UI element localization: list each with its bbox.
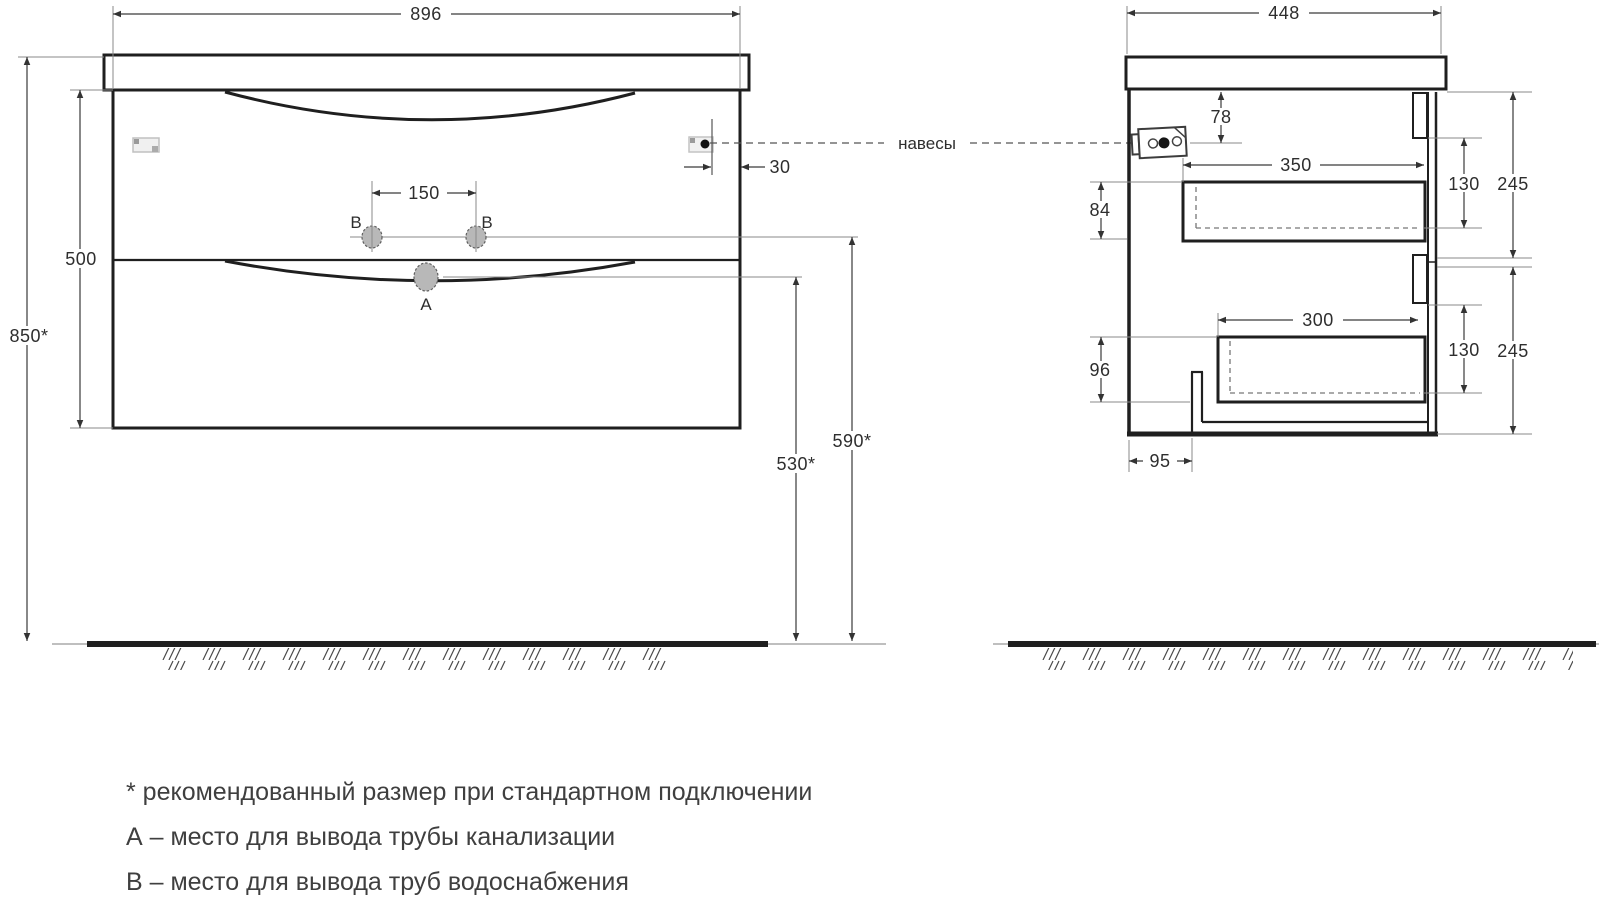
hanger-callout: навесы	[710, 134, 1150, 153]
side-floor	[993, 644, 1599, 670]
dim-850: 850*	[9, 326, 48, 346]
dim-front-total-height: 850*	[3, 57, 104, 641]
side-view	[1126, 57, 1446, 435]
label-b-left: B	[350, 213, 361, 232]
side-hanger-bracket	[1131, 127, 1186, 159]
dim-84: 84	[1089, 200, 1110, 220]
dim-896: 896	[410, 4, 442, 24]
drain-hole	[414, 263, 438, 291]
wall-rail-top	[1413, 93, 1427, 138]
dim-96: 96	[1089, 360, 1110, 380]
dim-500: 500	[65, 249, 97, 269]
footnotes: * рекомендованный размер при стандартном…	[126, 770, 812, 905]
dim-supply-height: 590*	[826, 237, 878, 641]
dim-448: 448	[1268, 3, 1300, 23]
dim-590: 590*	[832, 431, 871, 451]
side-countertop	[1126, 57, 1446, 89]
footnote-water-supply: В – место для вывода труб водоснабжения	[126, 860, 812, 905]
side-floor-hatching	[1028, 648, 1573, 670]
wall-rail-middle	[1413, 255, 1427, 303]
dim-350: 350	[1280, 155, 1312, 175]
label-b-right: B	[481, 213, 492, 232]
dim-drawer2-front: 130	[1423, 305, 1486, 393]
dim-530: 530*	[776, 454, 815, 474]
dim-drawer2-height: 96	[1081, 337, 1216, 402]
front-right-hanger-icon	[689, 137, 713, 152]
dim-130-top: 130	[1448, 174, 1480, 194]
dim-drain-height: 530*	[770, 277, 822, 641]
dim-hanger-drop: 78	[1190, 92, 1242, 143]
dim-245-bottom: 245	[1497, 341, 1529, 361]
dim-side-depth: 448	[1127, 3, 1441, 54]
dim-drawer1-height: 84	[1081, 182, 1181, 239]
dim-95: 95	[1149, 451, 1170, 471]
front-left-hanger-icon	[133, 138, 159, 152]
dim-150: 150	[408, 183, 440, 203]
footnote-drain: А – место для вывода трубы канализации	[126, 815, 812, 860]
dim-245-top: 245	[1497, 174, 1529, 194]
dim-130-bottom: 130	[1448, 340, 1480, 360]
front-floor-hatching	[150, 648, 672, 670]
side-drawer2-box	[1218, 337, 1425, 402]
dim-30: 30	[769, 157, 790, 177]
dim-drawer1-front: 130	[1423, 138, 1486, 228]
vanity-technical-drawing: B B A 896 850* 500 150 3	[0, 0, 1600, 905]
front-floor	[52, 644, 886, 670]
dim-front-body-height: 500	[58, 90, 113, 428]
dim-drawer2-depth: 300	[1218, 310, 1418, 337]
dim-78: 78	[1210, 107, 1231, 127]
side-drawer1-box	[1183, 182, 1425, 241]
label-a: A	[420, 295, 432, 314]
dim-plinth-offset: 95	[1129, 438, 1192, 472]
dim-300: 300	[1302, 310, 1334, 330]
dim-drawer1-depth: 350	[1183, 155, 1424, 182]
front-countertop	[104, 55, 749, 90]
front-view: B B A	[104, 55, 858, 428]
hanger-label: навесы	[898, 134, 956, 153]
footnote-recommended-size: * рекомендованный размер при стандартном…	[126, 770, 812, 815]
